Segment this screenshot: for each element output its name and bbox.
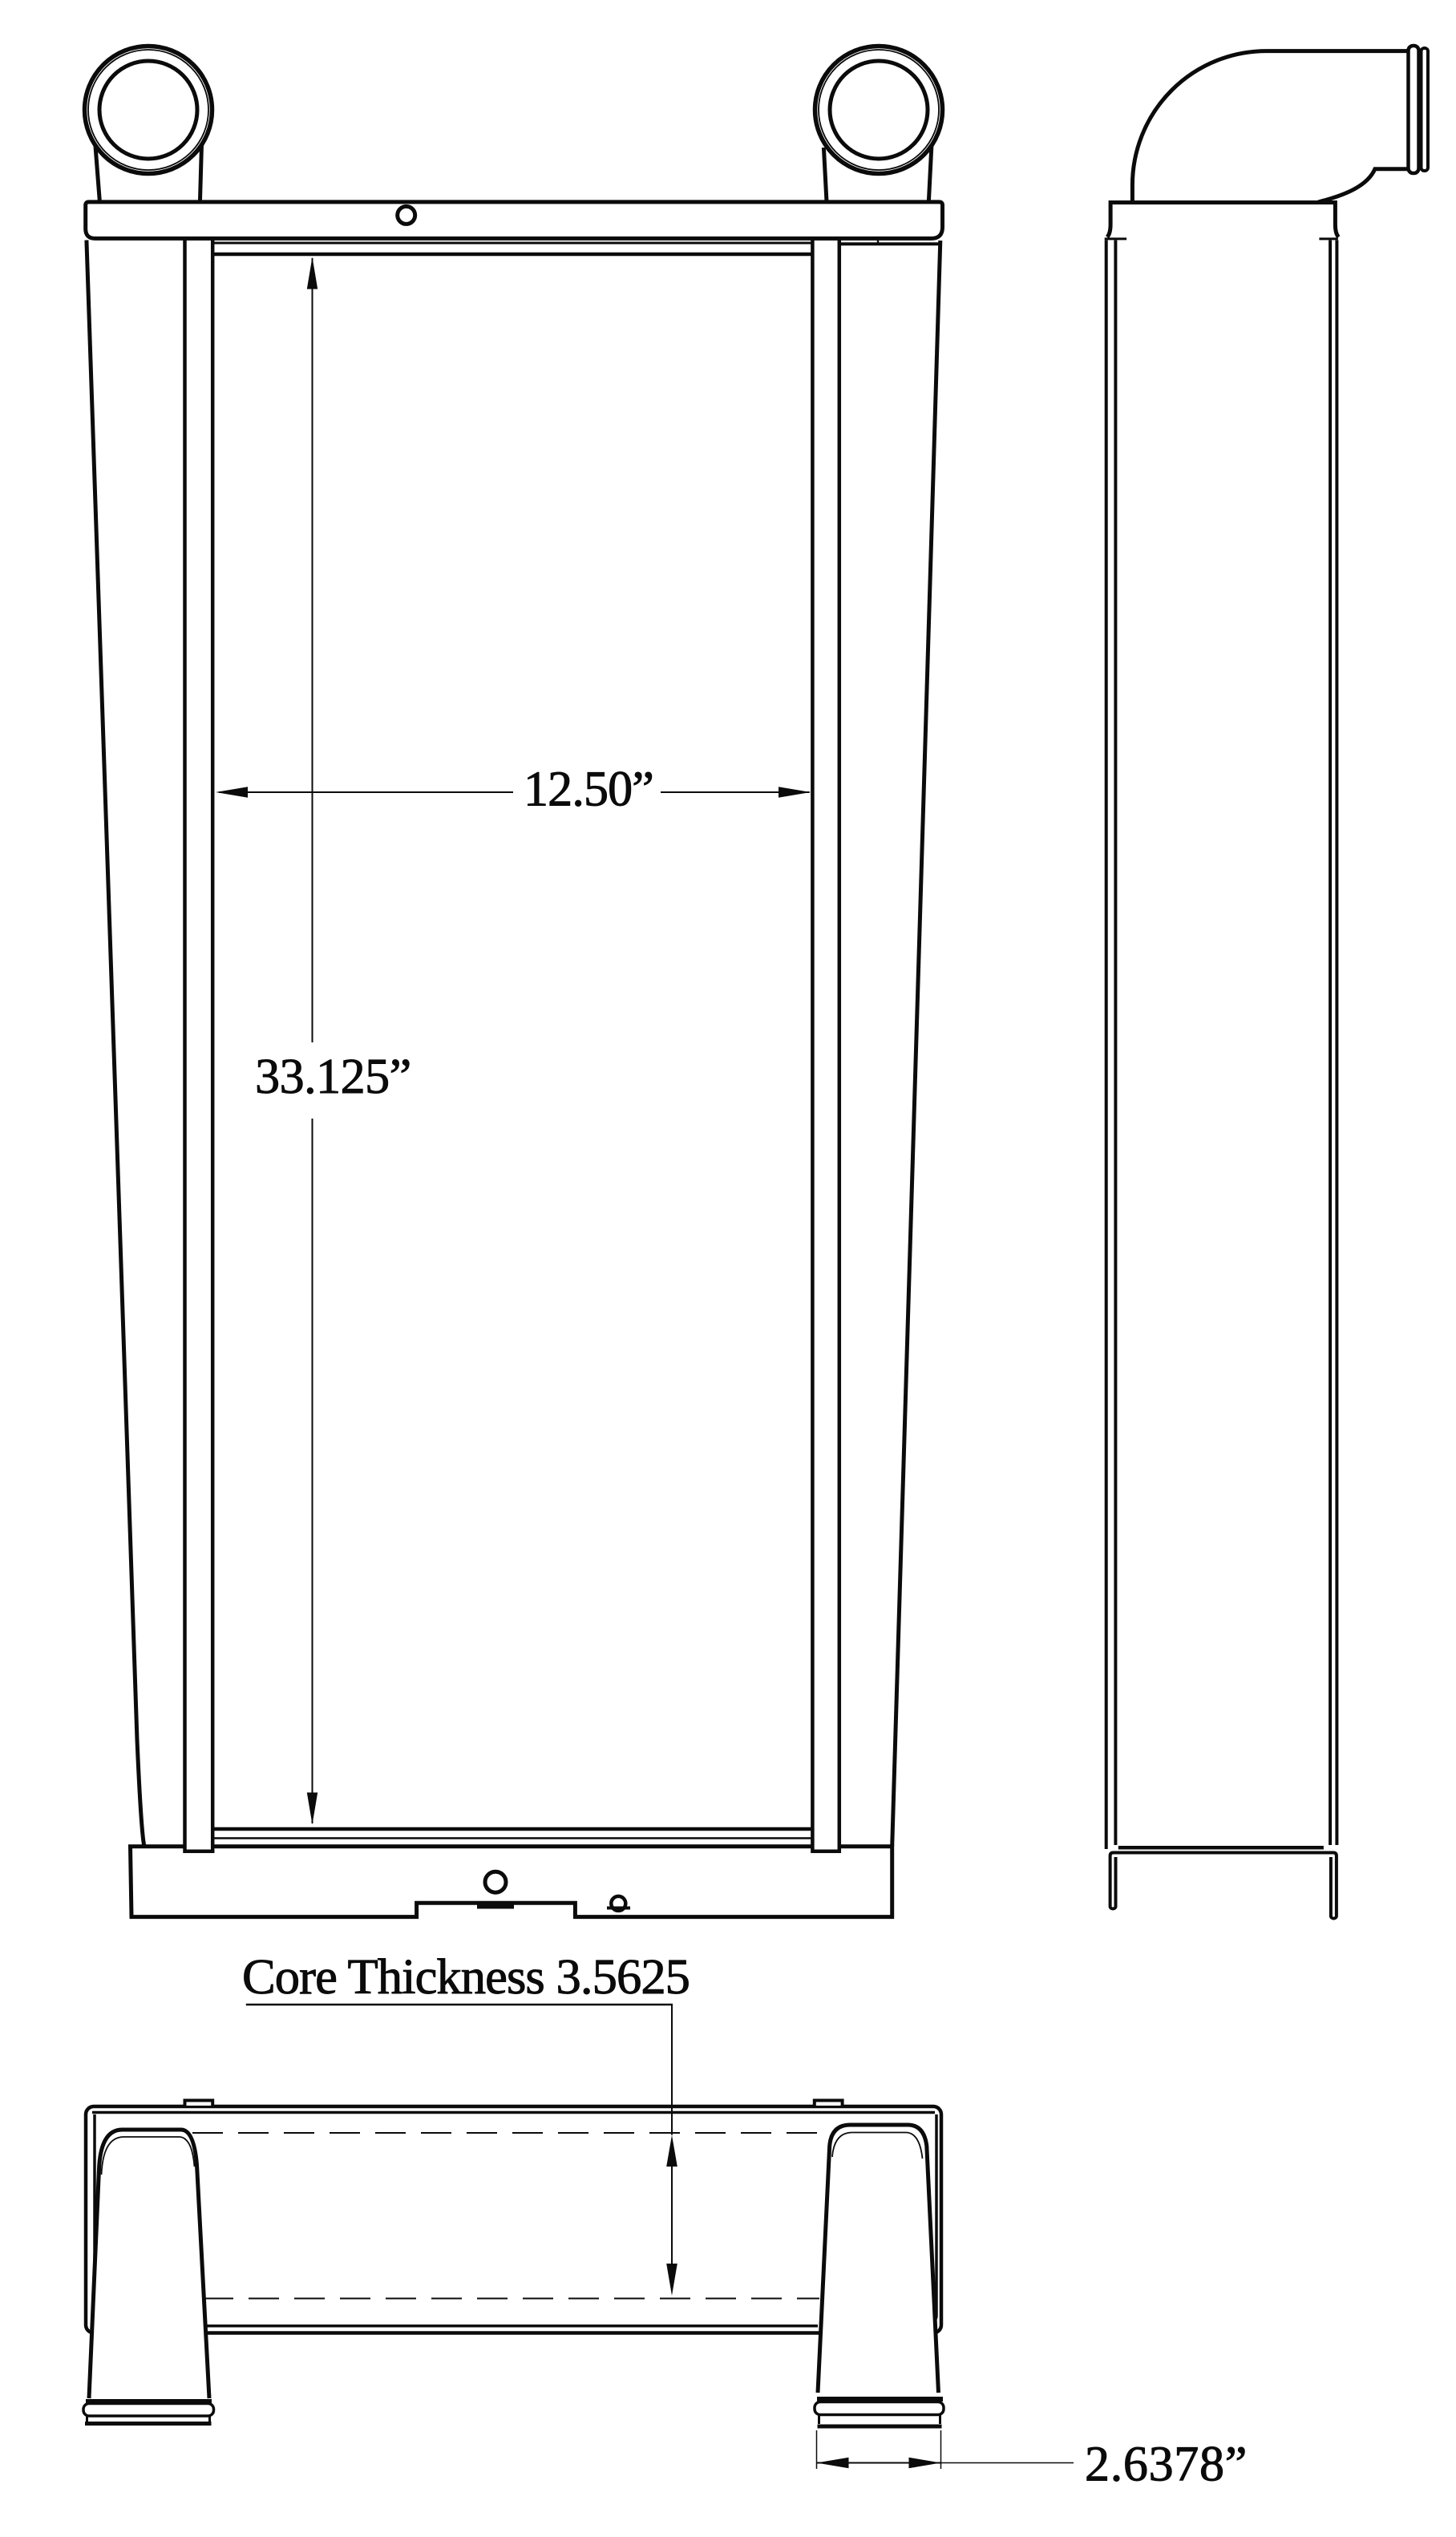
svg-text:Core Thickness 3.5625: Core Thickness 3.5625 xyxy=(242,1948,690,2005)
svg-text:12.50”: 12.50” xyxy=(524,762,653,816)
svg-text:2.6378”: 2.6378” xyxy=(1085,2438,1248,2492)
svg-text:33.125”: 33.125” xyxy=(255,1050,411,1104)
